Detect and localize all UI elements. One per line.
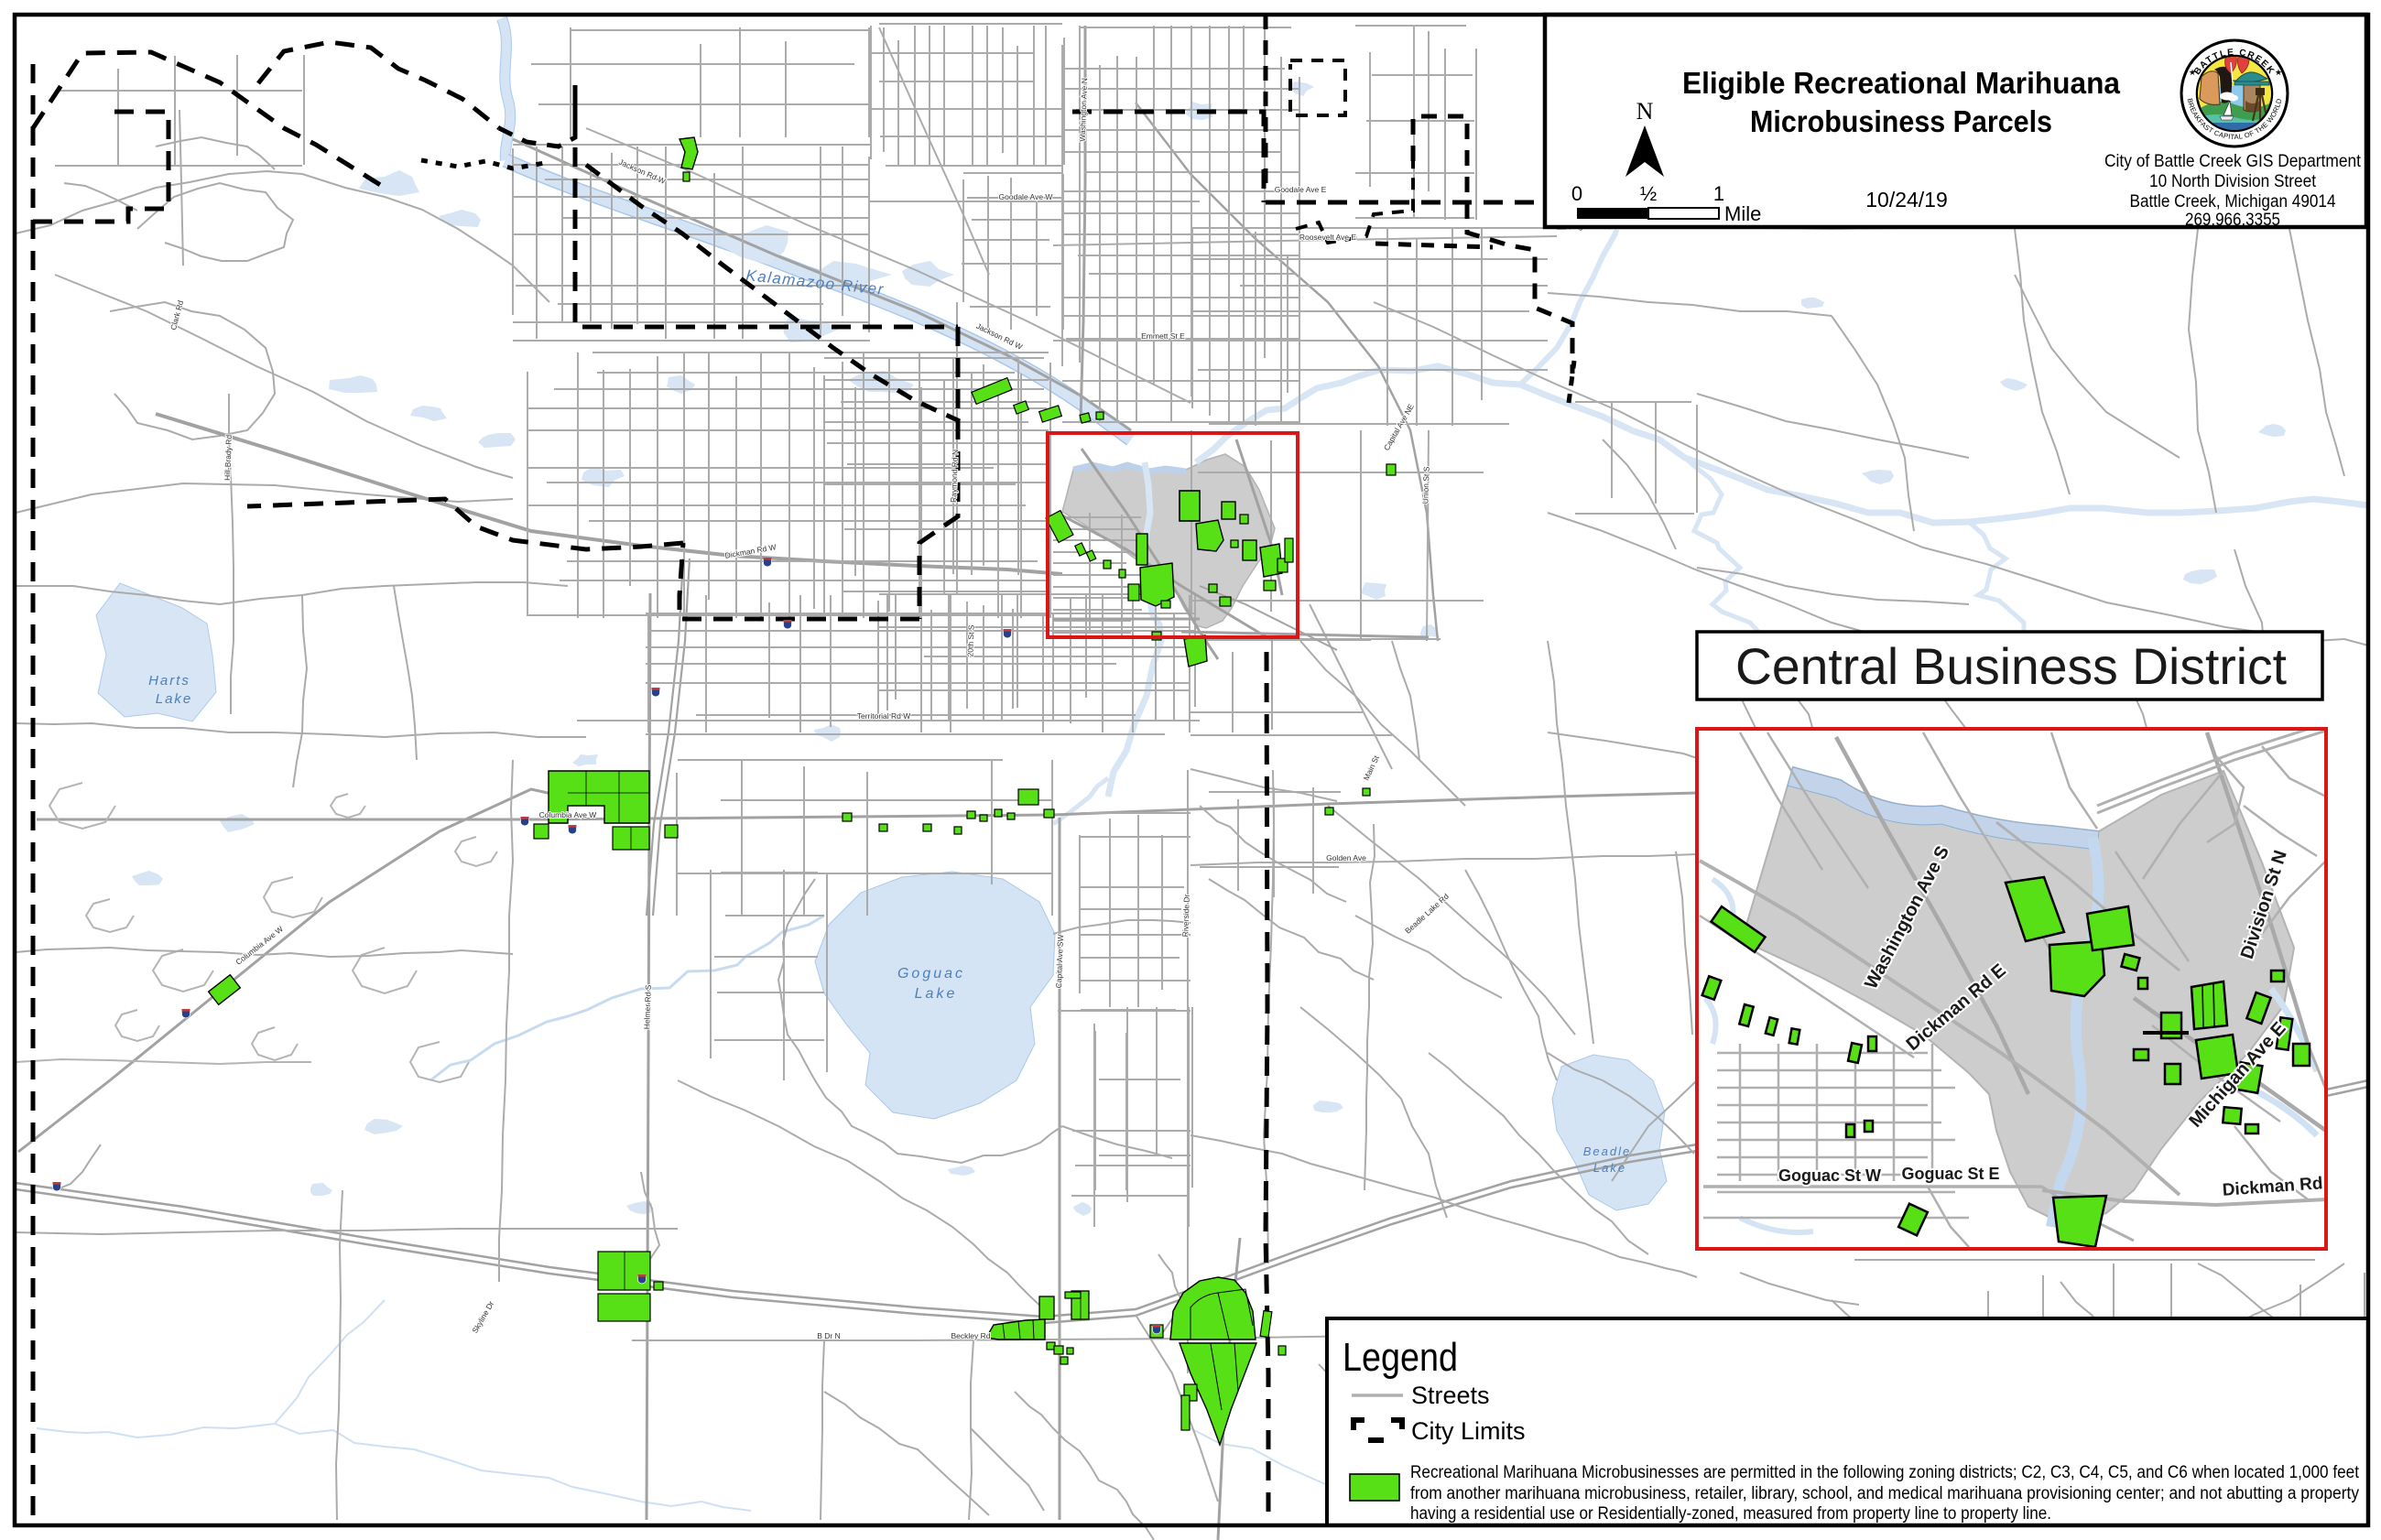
svg-text:Roosevelt Ave E: Roosevelt Ave E <box>1299 233 1357 242</box>
svg-text:City of Battle Creek GIS Depar: City of Battle Creek GIS Department <box>2104 152 2362 171</box>
svg-text:from another marihuana microbu: from another marihuana microbusiness, re… <box>1410 1484 2359 1503</box>
svg-text:1: 1 <box>1713 182 1724 205</box>
svg-text:10 North Division Street: 10 North Division Street <box>2149 172 2317 191</box>
svg-text:Central Business District: Central Business District <box>1735 637 2287 695</box>
svg-text:Goodale Ave W: Goodale Ave W <box>999 192 1053 201</box>
svg-text:Lake: Lake <box>1593 1161 1626 1175</box>
svg-text:B Dr N: B Dr N <box>817 1331 841 1340</box>
svg-text:Goodale Ave E: Goodale Ave E <box>1275 185 1327 194</box>
svg-text:Capital Ave SW: Capital Ave SW <box>1054 934 1065 988</box>
svg-text:Emmett St E: Emmett St E <box>1141 331 1185 341</box>
svg-text:Microbusiness Parcels: Microbusiness Parcels <box>1750 104 2052 138</box>
svg-text:Beckley Rd: Beckley Rd <box>951 1331 991 1340</box>
svg-text:Helmer Rd S: Helmer Rd S <box>642 984 653 1029</box>
svg-text:City Limits: City Limits <box>1411 1417 1526 1445</box>
svg-text:20th St S: 20th St S <box>965 624 975 657</box>
svg-text:Recreational Marihuana Microbu: Recreational Marihuana Microbusinesses a… <box>1410 1463 2360 1482</box>
svg-text:Legend: Legend <box>1343 1335 1458 1380</box>
svg-text:Harts: Harts <box>148 673 190 689</box>
svg-text:Raymond Rd N: Raymond Rd N <box>949 450 960 503</box>
svg-text:Goguac: Goguac <box>897 966 965 981</box>
svg-text:having a residential use or Re: having a residential use or Residentiall… <box>1410 1504 2051 1524</box>
svg-text:Beadle: Beadle <box>1583 1144 1631 1158</box>
svg-text:★: ★ <box>2275 68 2282 77</box>
svg-text:10/24/19: 10/24/19 <box>1865 188 1948 211</box>
svg-text:Columbia Ave W: Columbia Ave W <box>539 810 597 819</box>
svg-text:Goguac St E: Goguac St E <box>1901 1165 1999 1183</box>
svg-text:Riverside Dr: Riverside Dr <box>1180 894 1191 937</box>
svg-text:Lake: Lake <box>156 691 193 707</box>
svg-text:★: ★ <box>2189 68 2196 77</box>
svg-text:0: 0 <box>1571 182 1582 205</box>
svg-text:Union St S: Union St S <box>1420 466 1430 504</box>
svg-text:Mile: Mile <box>1724 202 1761 225</box>
svg-text:Territorial Rd W: Territorial Rd W <box>857 711 911 721</box>
svg-text:Goguac St W: Goguac St W <box>1778 1166 1881 1185</box>
svg-text:Streets: Streets <box>1411 1382 1490 1409</box>
svg-text:½: ½ <box>1640 182 1657 205</box>
svg-text:Lake: Lake <box>915 986 958 1002</box>
svg-text:Golden Ave: Golden Ave <box>1326 853 1366 862</box>
svg-text:Battle Creek, Michigan 49014: Battle Creek, Michigan 49014 <box>2130 192 2336 211</box>
svg-text:Hill-Brady Rd: Hill-Brady Rd <box>223 434 234 481</box>
svg-text:N: N <box>1636 98 1654 125</box>
svg-text:269.966.3355: 269.966.3355 <box>2185 211 2280 230</box>
svg-text:Eligible Recreational Marihuan: Eligible Recreational Marihuana <box>1682 66 2121 100</box>
